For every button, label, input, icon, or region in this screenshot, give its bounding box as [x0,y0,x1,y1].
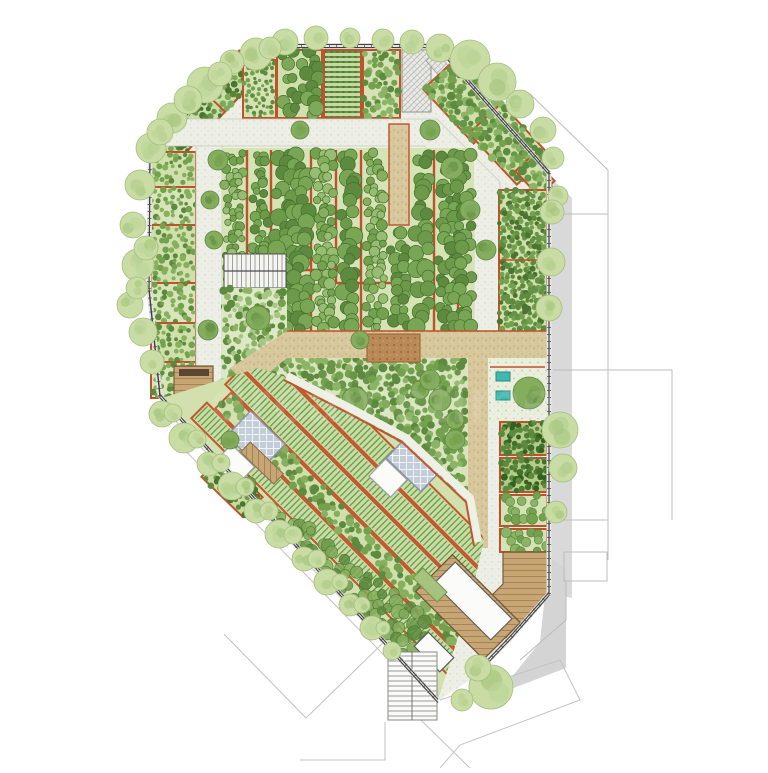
svg-text:dreamstime: dreamstime [211,370,557,435]
